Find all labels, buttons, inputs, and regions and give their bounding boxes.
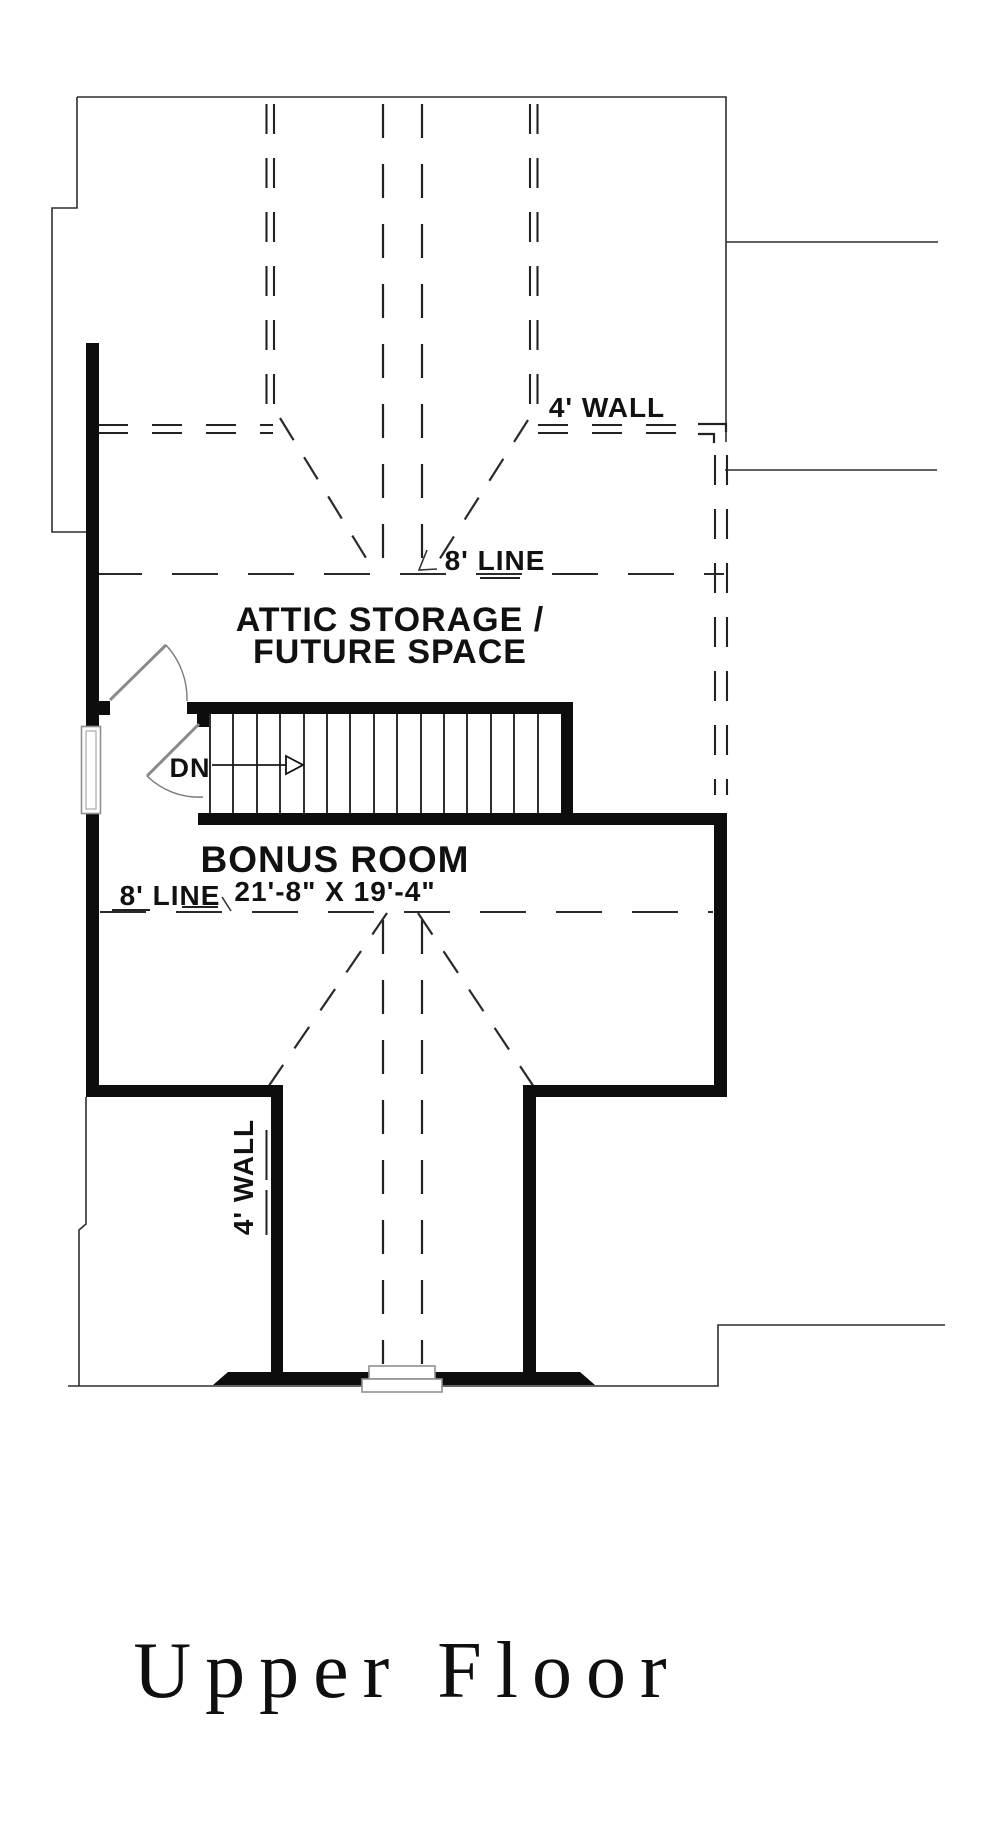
wall-stair-right — [561, 702, 573, 825]
sheet-title: Upper Floor — [133, 1627, 680, 1715]
wall-step-right — [523, 1085, 727, 1097]
label-attic-line2: FUTURE SPACE — [253, 633, 527, 671]
roof-outline-lower-left — [79, 1097, 86, 1386]
line8-lower-leader — [222, 897, 231, 911]
label-line8-lower: 8' LINE — [120, 880, 221, 911]
window-bottom-sill — [362, 1379, 442, 1392]
roof-outline — [52, 97, 945, 1386]
wall-stair-bottom — [198, 813, 727, 825]
label-bonus-dims: 21'-8" X 19'-4" — [234, 876, 435, 907]
wall-left-upper — [86, 343, 99, 702]
roof-outline-left-notch — [52, 97, 86, 532]
wall-step-left — [86, 1085, 283, 1097]
wall-bumpout-right — [523, 1097, 536, 1379]
staircase: DN — [170, 714, 539, 813]
valley-lower-left — [266, 913, 387, 1090]
door-attic-swing-arc — [166, 645, 187, 701]
wall-bumpout-left — [271, 1097, 283, 1379]
stair-direction-arrow-head — [286, 756, 303, 774]
stair-dn-label: DN — [170, 753, 211, 783]
stair-treads — [210, 714, 538, 813]
wall-left-lower — [86, 812, 99, 1090]
valley-upper-left — [280, 418, 374, 571]
window-bottom-outer — [369, 1366, 435, 1379]
label-wall4-lower: 4' WALL — [228, 1119, 259, 1235]
wall-bonus-right — [714, 825, 727, 1097]
label-line8-upper: 8' LINE — [445, 545, 546, 576]
window-left-inner — [86, 731, 96, 809]
floor-plan-drawing: DN 4' WALL 8' LINE ATTIC STORAGE / FUTUR… — [0, 0, 1000, 1848]
wall-door-jamb — [86, 701, 110, 715]
wall-bottom-left-segment — [213, 1372, 372, 1385]
wall-stair-top — [187, 702, 573, 714]
windows — [82, 727, 443, 1393]
wall-bottom-right-segment — [434, 1372, 595, 1385]
valley-lower-right — [418, 913, 536, 1090]
wall4-corner-bracket — [698, 424, 726, 443]
label-bonus-room: BONUS ROOM — [201, 839, 470, 880]
roof-outline-top — [77, 97, 726, 442]
door-attic-leaf — [110, 645, 166, 700]
label-wall4-upper: 4' WALL — [549, 392, 665, 423]
floor-plan-page: DN 4' WALL 8' LINE ATTIC STORAGE / FUTUR… — [0, 0, 1000, 1848]
